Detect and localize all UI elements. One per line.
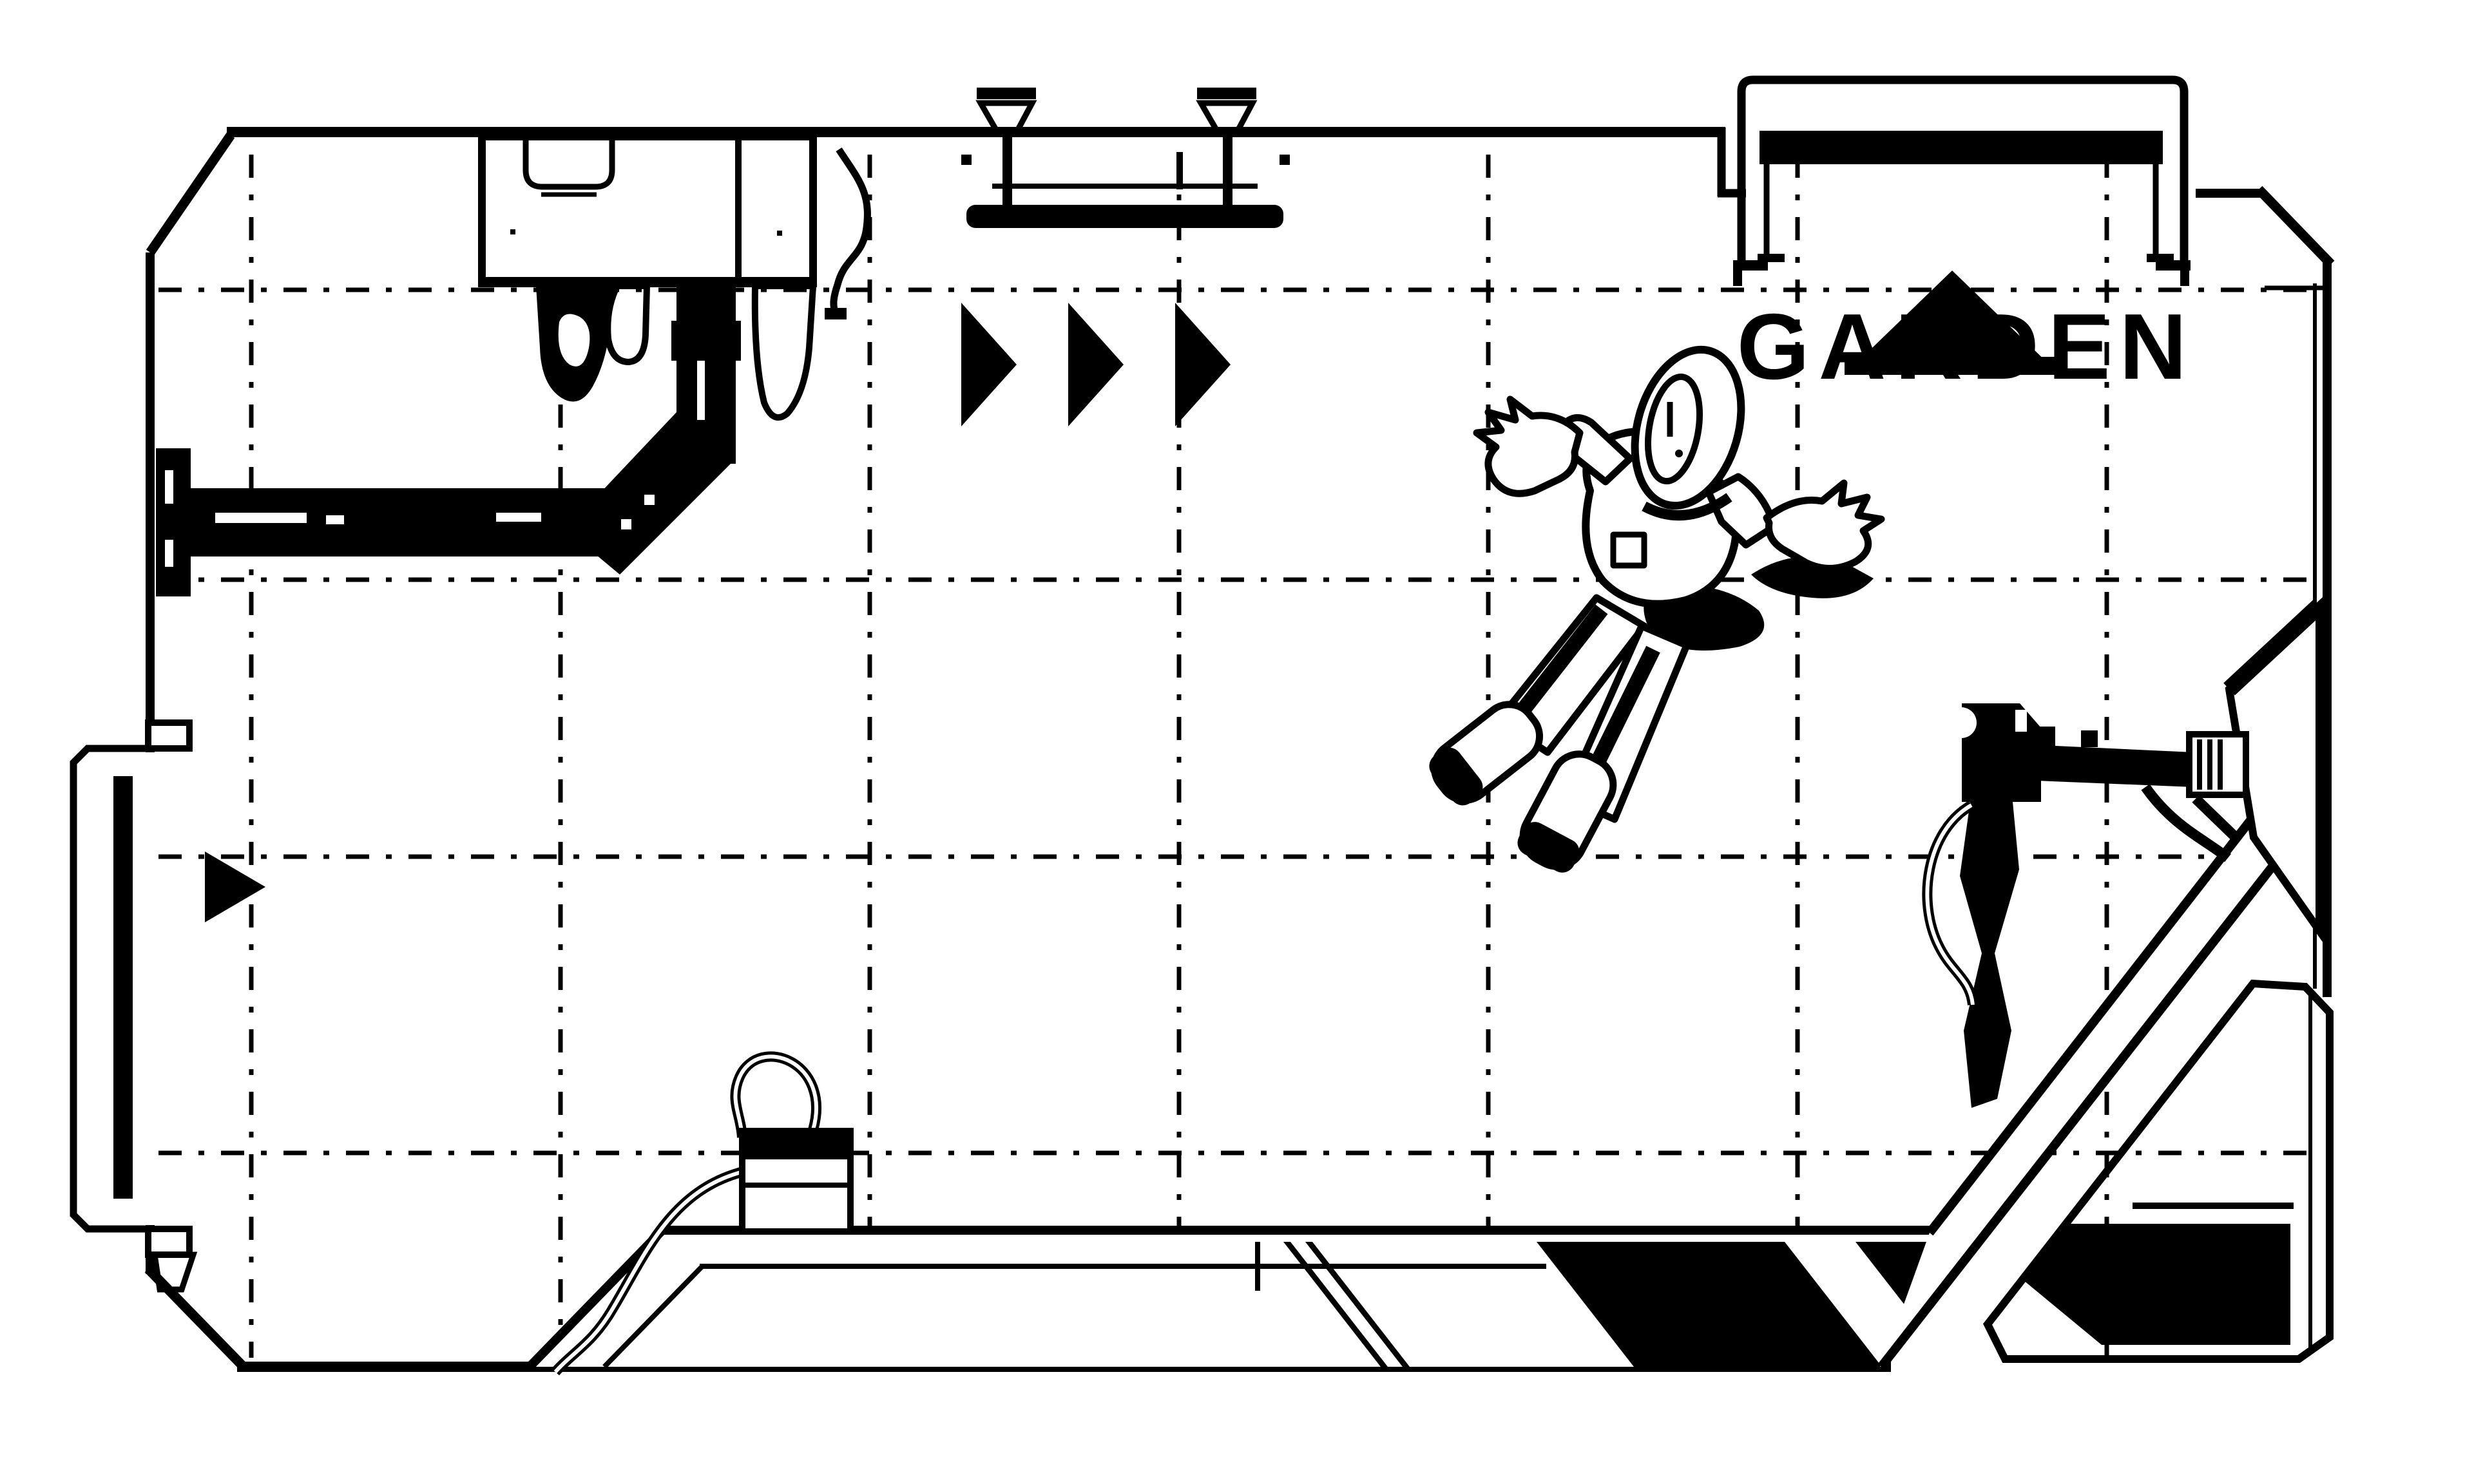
door-slab [113,776,133,1199]
game-viewport: GARDEN [0,0,2474,1484]
lamp-post-cap [977,88,1036,99]
lamp-post-cap [1197,88,1256,99]
lamp-bar [966,205,1283,228]
garden-sign-label: GARDEN [1737,294,2196,399]
doorway-lintel [1760,131,2163,164]
scene-canvas: GARDEN [0,0,2474,1484]
